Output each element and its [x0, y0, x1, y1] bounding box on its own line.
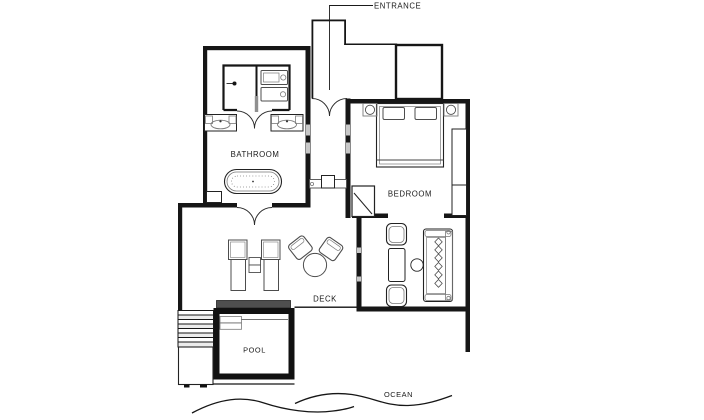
door-pivot-dot [233, 82, 237, 86]
coffee-table [389, 249, 406, 282]
entry-corridor [310, 176, 347, 189]
toilet-door-arc-left [237, 111, 255, 129]
vanity-right [271, 115, 303, 132]
pillow [415, 108, 437, 120]
deck-label: DECK [313, 295, 337, 304]
bidet-icon [261, 88, 288, 102]
deck: DECK [217, 235, 344, 308]
lamp [365, 105, 374, 114]
entrance-label: ENTRANCE [374, 2, 421, 11]
toilet-door-arc-right [255, 111, 273, 129]
floor-plan: ENTRANCE [0, 0, 704, 420]
entry-door-arc-left [312, 99, 330, 117]
round-table [303, 253, 326, 276]
nightstand-left [363, 104, 377, 117]
entry-door-arc-right [330, 99, 348, 117]
wave-line [295, 394, 452, 406]
ocean: OCEAN [192, 390, 452, 413]
sofa-icon [424, 229, 453, 302]
toilet-icon [261, 71, 288, 85]
vanity-left [205, 115, 237, 132]
bench-box [322, 176, 335, 189]
pool: POOL [214, 311, 295, 384]
bath-stool [207, 192, 222, 203]
ocean-label: OCEAN [384, 390, 413, 399]
pillow [383, 108, 405, 120]
bathtub-icon [225, 170, 282, 194]
bathroom-label: BATHROOM [231, 150, 280, 159]
bathroom-deck-door-arc-left [237, 208, 255, 226]
bathroom-deck-door-arc-right [255, 208, 273, 226]
bed-icon [377, 104, 444, 168]
armchair-bottom [387, 285, 407, 307]
bedroom-label: BEDROOM [388, 190, 432, 199]
sun-lounger-left [229, 240, 248, 291]
wardrobe-lower [452, 185, 467, 216]
landing-platform [179, 347, 214, 388]
lamp [446, 105, 455, 114]
closet [352, 186, 375, 217]
wave-line [192, 399, 354, 413]
nightstand-right [444, 104, 458, 117]
bedroom: BEDROOM [352, 104, 467, 217]
sun-lounger-right [262, 240, 281, 291]
sitting-area [387, 224, 453, 307]
entrance-leader-line [330, 6, 374, 91]
faucet-dot [286, 120, 288, 122]
lounger-side-table [249, 258, 261, 273]
bathroom: BATHROOM [205, 66, 304, 226]
side-table [411, 259, 423, 271]
entry-court [396, 45, 442, 99]
wardrobe-upper [452, 129, 467, 185]
faucet-dot [219, 120, 221, 122]
floor-plan-svg: ENTRANCE [0, 0, 704, 420]
armchair-top [387, 224, 407, 246]
stairs [178, 311, 214, 348]
pool-label: POOL [243, 346, 266, 355]
pool-basin [217, 311, 292, 377]
pool-coping-bar [217, 301, 291, 309]
toilet-room-door-leaf [255, 96, 258, 112]
